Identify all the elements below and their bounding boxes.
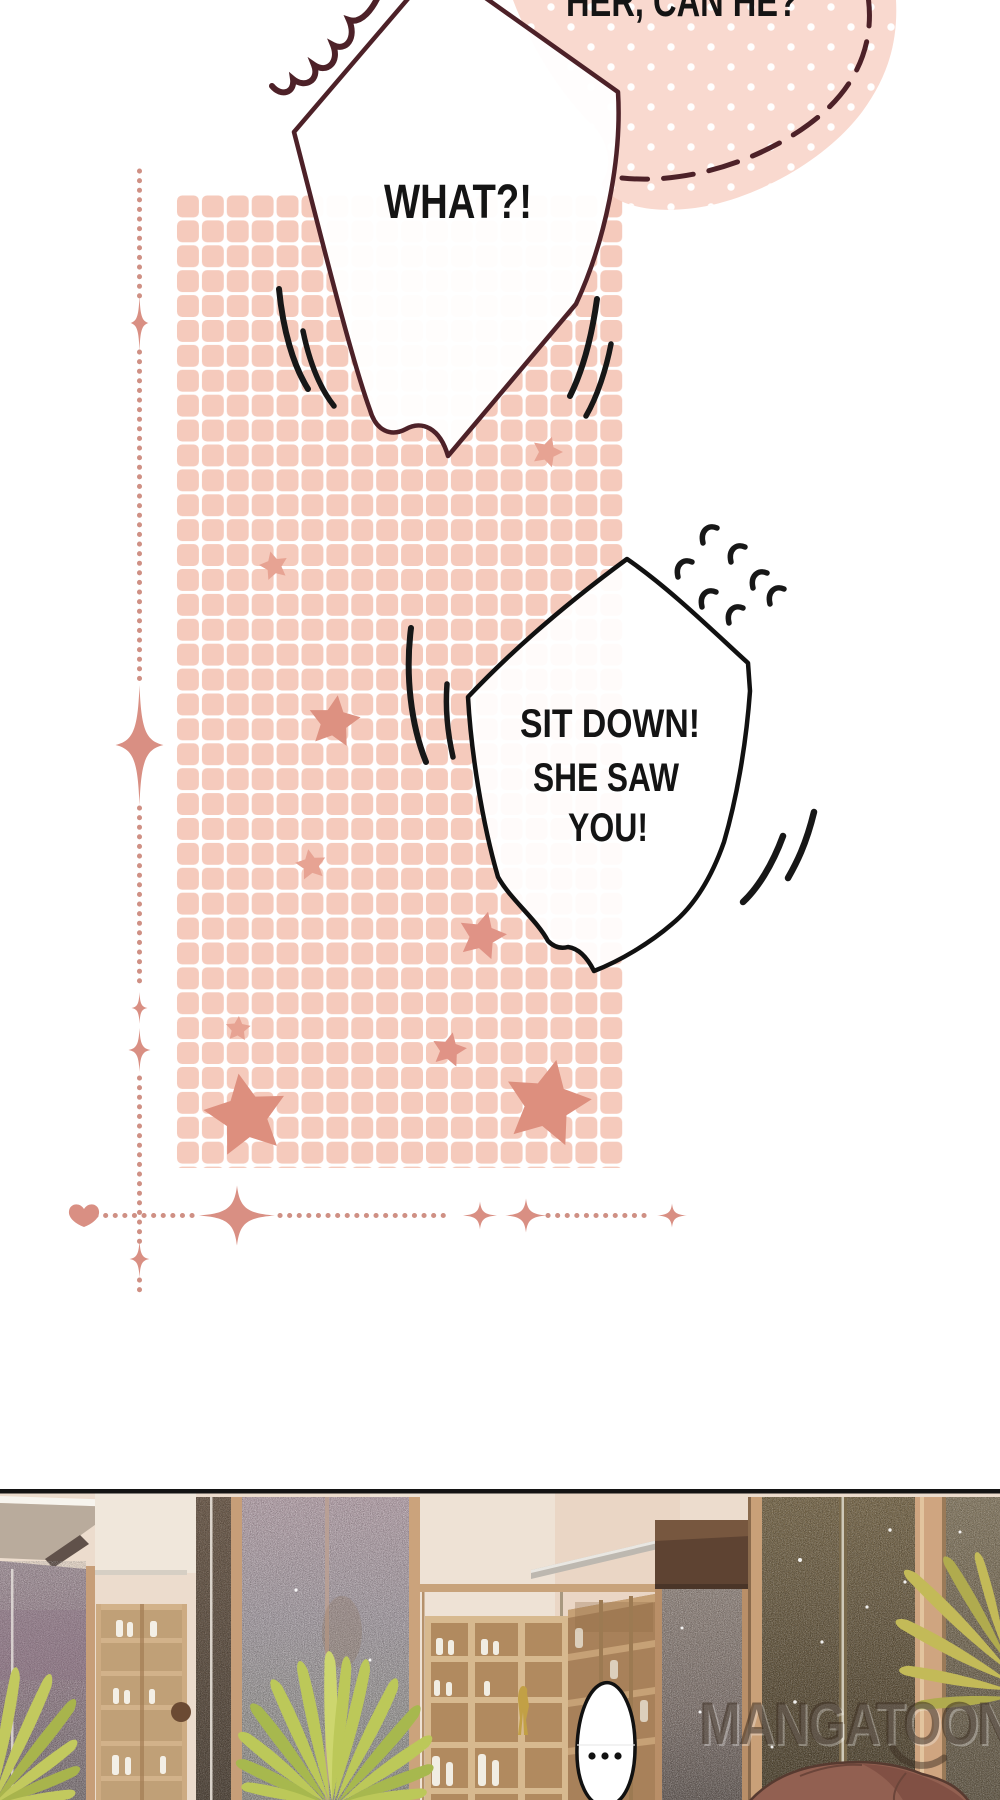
svg-text:SHE SAW: SHE SAW [533,756,679,800]
svg-text:WHAT?!: WHAT?! [384,176,532,229]
svg-text:SIT DOWN!: SIT DOWN! [520,702,700,746]
svg-text:MANGATOON: MANGATOON [699,1690,1000,1757]
svg-text:HER, CAN HE?: HER, CAN HE? [566,0,798,26]
svg-text:YOU!: YOU! [568,806,648,850]
